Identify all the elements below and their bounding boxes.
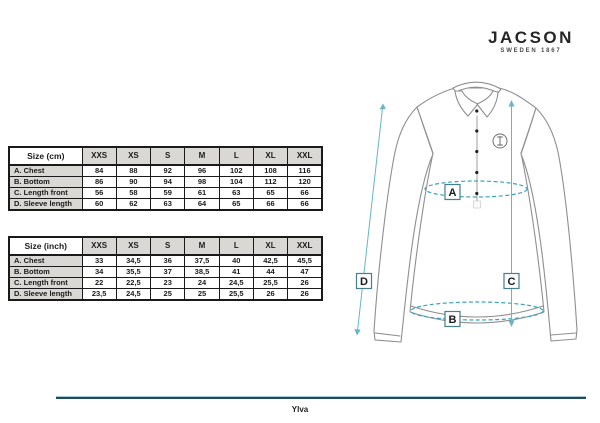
arrowhead-down-icon xyxy=(354,329,360,336)
row-label: C. Length front xyxy=(9,188,82,199)
placket-end-square xyxy=(474,201,481,208)
cell: 66 xyxy=(253,199,287,211)
shirt-measurement-diagram: A B C D xyxy=(340,75,600,365)
cell: 60 xyxy=(82,199,116,211)
cell: 33 xyxy=(82,255,116,267)
table-header-row: Size (inch) XXS XS S M L XL XXL xyxy=(9,237,322,255)
table-row: B. Bottom 86 90 94 98 104 112 120 xyxy=(9,177,322,188)
col-header: S xyxy=(151,237,185,255)
brand-name: JACSON xyxy=(486,30,576,46)
cell: 35,5 xyxy=(116,267,150,278)
col-header: S xyxy=(151,147,185,165)
cell: 116 xyxy=(288,165,322,177)
col-header: XXL xyxy=(288,147,322,165)
cell: 41 xyxy=(219,267,253,278)
row-label: D. Sleeve length xyxy=(9,289,82,301)
row-label: D. Sleeve length xyxy=(9,199,82,211)
cell: 44 xyxy=(253,267,287,278)
table-header-row: Size (cm) XXS XS S M L XL XXL xyxy=(9,147,322,165)
cell: 22,5 xyxy=(116,278,150,289)
cell: 56 xyxy=(82,188,116,199)
cell: 94 xyxy=(151,177,185,188)
col-header: M xyxy=(185,147,219,165)
cell: 90 xyxy=(116,177,150,188)
table-row: C. Length front 56 58 59 61 63 65 66 xyxy=(9,188,322,199)
col-header: XXS xyxy=(82,147,116,165)
cell: 36 xyxy=(151,255,185,267)
col-header: M xyxy=(185,237,219,255)
col-header: XXL xyxy=(288,237,322,255)
cell: 24,5 xyxy=(116,289,150,301)
cell: 26 xyxy=(288,289,322,301)
cell: 58 xyxy=(116,188,150,199)
cell: 102 xyxy=(219,165,253,177)
cell: 65 xyxy=(253,188,287,199)
cell: 24 xyxy=(185,278,219,289)
cell: 42,5 xyxy=(253,255,287,267)
cell: 84 xyxy=(82,165,116,177)
cell: 104 xyxy=(219,177,253,188)
product-name: Ylva xyxy=(0,405,600,414)
arrowhead-up-icon xyxy=(380,104,386,110)
table-row: C. Length front 22 22,5 23 24 24,5 25,5 … xyxy=(9,278,322,289)
size-table-cm: Size (cm) XXS XS S M L XL XXL A. Chest 8… xyxy=(8,146,323,211)
row-label: C. Length front xyxy=(9,278,82,289)
arrowhead-down-icon xyxy=(509,321,515,328)
cell: 47 xyxy=(288,267,322,278)
cell: 92 xyxy=(151,165,185,177)
col-header: XL xyxy=(253,237,287,255)
cell: 96 xyxy=(185,165,219,177)
cell: 61 xyxy=(185,188,219,199)
cell: 25,5 xyxy=(253,278,287,289)
cell: 38,5 xyxy=(185,267,219,278)
cell: 120 xyxy=(288,177,322,188)
cell: 26 xyxy=(253,289,287,301)
footer-divider xyxy=(56,396,586,399)
cell: 62 xyxy=(116,199,150,211)
label-d: D xyxy=(360,276,368,288)
cell: 37,5 xyxy=(185,255,219,267)
row-label: B. Bottom xyxy=(9,177,82,188)
size-table-inch: Size (inch) XXS XS S M L XL XXL A. Chest… xyxy=(8,236,323,301)
cell: 22 xyxy=(82,278,116,289)
label-c: C xyxy=(508,276,516,288)
cell: 25 xyxy=(151,289,185,301)
table-row: D. Sleeve length 23,5 24,5 25 25 25,5 26… xyxy=(9,289,322,301)
label-b: B xyxy=(449,314,457,326)
cell: 23,5 xyxy=(82,289,116,301)
col-header: L xyxy=(219,147,253,165)
cell: 45,5 xyxy=(288,255,322,267)
cell: 40 xyxy=(219,255,253,267)
col-header: L xyxy=(219,237,253,255)
cell: 64 xyxy=(185,199,219,211)
cell: 66 xyxy=(288,199,322,211)
cell: 108 xyxy=(253,165,287,177)
table-title: Size (cm) xyxy=(9,147,82,165)
cell: 26 xyxy=(288,278,322,289)
table-row: D. Sleeve length 60 62 63 64 65 66 66 xyxy=(9,199,322,211)
cell: 63 xyxy=(151,199,185,211)
table-row: A. Chest 84 88 92 96 102 108 116 xyxy=(9,165,322,177)
cell: 98 xyxy=(185,177,219,188)
cell: 34 xyxy=(82,267,116,278)
brand-tagline: SWEDEN 1867 xyxy=(486,48,576,54)
cell: 65 xyxy=(219,199,253,211)
cell: 63 xyxy=(219,188,253,199)
table-row: B. Bottom 34 35,5 37 38,5 41 44 47 xyxy=(9,267,322,278)
brand-logo: JACSON SWEDEN 1867 xyxy=(486,30,576,54)
row-label: A. Chest xyxy=(9,165,82,177)
cell: 37 xyxy=(151,267,185,278)
cell: 86 xyxy=(82,177,116,188)
col-header: XXS xyxy=(82,237,116,255)
cell: 112 xyxy=(253,177,287,188)
row-label: B. Bottom xyxy=(9,267,82,278)
cell: 24,5 xyxy=(219,278,253,289)
cell: 25,5 xyxy=(219,289,253,301)
label-a: A xyxy=(449,187,457,199)
table-title: Size (inch) xyxy=(9,237,82,255)
row-label: A. Chest xyxy=(9,255,82,267)
col-header: XS xyxy=(116,147,150,165)
cell: 25 xyxy=(185,289,219,301)
cell: 34,5 xyxy=(116,255,150,267)
col-header: XL xyxy=(253,147,287,165)
cell: 88 xyxy=(116,165,150,177)
cell: 23 xyxy=(151,278,185,289)
cell: 66 xyxy=(288,188,322,199)
col-header: XS xyxy=(116,237,150,255)
table-row: A. Chest 33 34,5 36 37,5 40 42,5 45,5 xyxy=(9,255,322,267)
cell: 59 xyxy=(151,188,185,199)
